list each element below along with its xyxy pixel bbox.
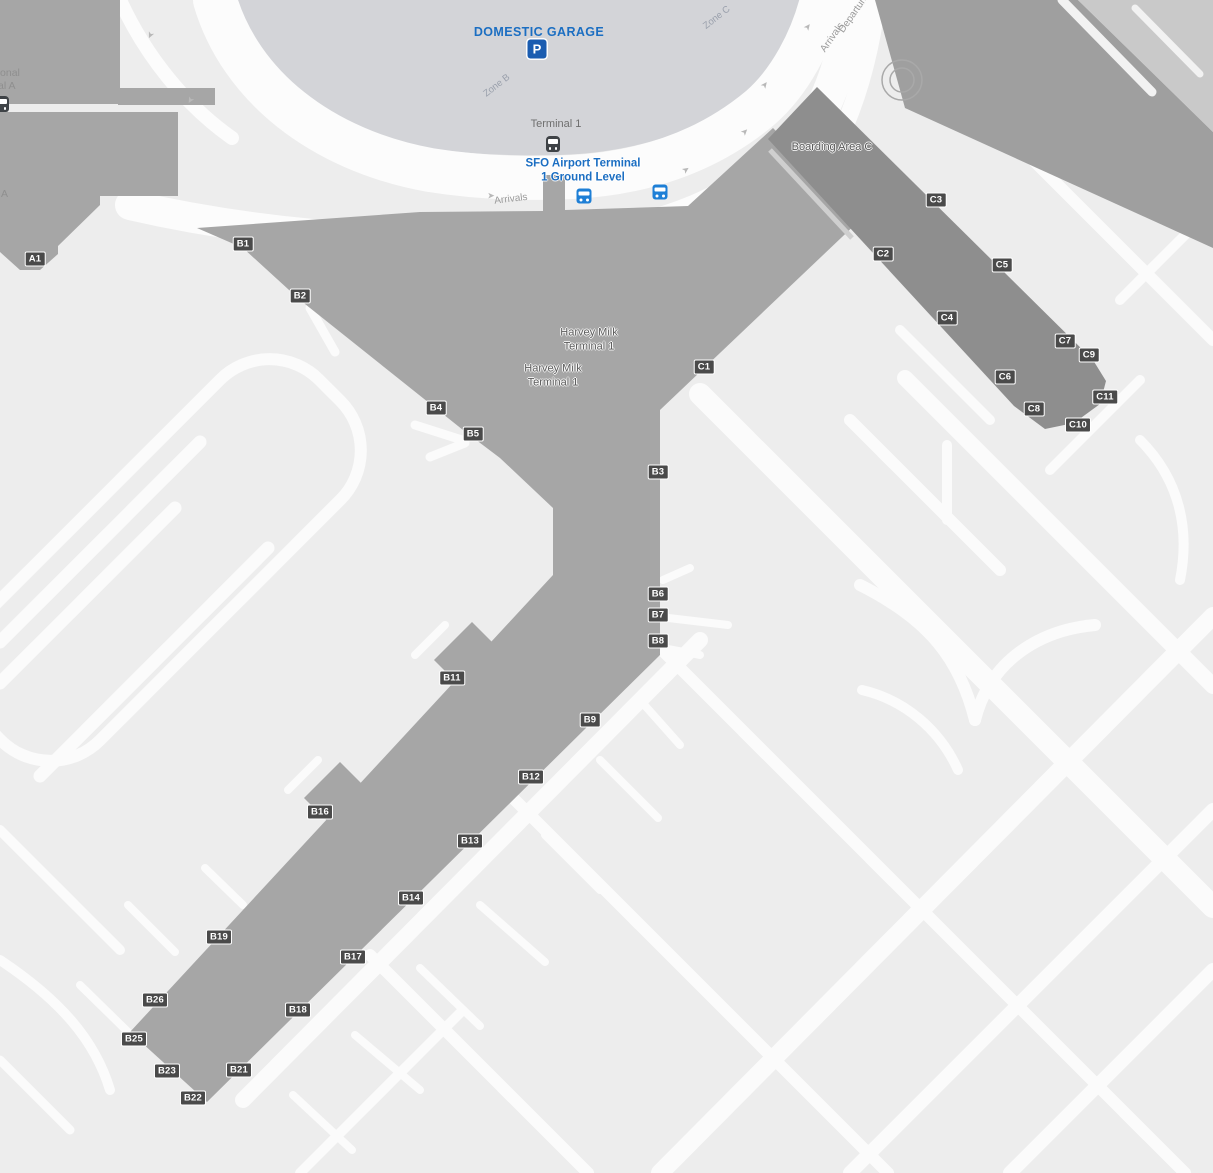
international-terminal-label: International Terminal A: [0, 67, 20, 93]
gate-badge-C6[interactable]: C6: [995, 370, 1016, 385]
terminal-connector-bridge: [118, 88, 215, 105]
harvey-milk-terminal-label: Harvey Milk Terminal 1: [524, 362, 581, 390]
gate-badge-B23[interactable]: B23: [154, 1064, 180, 1079]
gate-badge-C11[interactable]: C11: [1092, 390, 1118, 405]
gate-badge-B6[interactable]: B6: [648, 587, 669, 602]
bus-stop-icon[interactable]: [653, 185, 668, 200]
gate-badge-B12[interactable]: B12: [518, 770, 544, 785]
gate-badge-B26[interactable]: B26: [142, 993, 168, 1008]
gate-badge-B7[interactable]: B7: [648, 608, 669, 623]
gate-badge-B2[interactable]: B2: [290, 289, 311, 304]
terminal-1-station-label: Terminal 1: [531, 118, 582, 132]
gate-badge-B22[interactable]: B22: [180, 1091, 206, 1106]
gate-badge-B9[interactable]: B9: [580, 713, 601, 728]
harvey-milk-line1: Harvey Milk: [560, 326, 617, 340]
gate-badge-B11[interactable]: B11: [439, 671, 465, 686]
gate-badge-B18[interactable]: B18: [285, 1003, 311, 1018]
train-station-icon[interactable]: [0, 96, 9, 112]
boarding-area-a-label: International Boarding Area A: [0, 175, 8, 201]
gate-badge-B1[interactable]: B1: [233, 237, 254, 252]
gate-badge-A1[interactable]: A1: [25, 252, 46, 267]
gate-badge-B25[interactable]: B25: [121, 1032, 147, 1047]
gate-badge-B3[interactable]: B3: [648, 465, 669, 480]
harvey-milk-line2: Terminal 1: [560, 340, 617, 354]
gate-badge-C1[interactable]: C1: [694, 360, 715, 375]
road-arrow-icon: ➤: [487, 192, 495, 201]
intl-terminal-line1: International: [0, 67, 20, 80]
gate-badge-B14[interactable]: B14: [398, 891, 424, 906]
boarding-area-a-line1: International: [0, 175, 8, 188]
gate-badge-B13[interactable]: B13: [457, 834, 483, 849]
gate-badge-B8[interactable]: B8: [648, 634, 669, 649]
gate-badge-C5[interactable]: C5: [992, 258, 1013, 273]
ground-level-label: SFO Airport Terminal 1 Ground Level: [525, 157, 640, 186]
gate-badge-B5[interactable]: B5: [463, 427, 484, 442]
train-station-icon[interactable]: [546, 136, 560, 152]
gate-badge-C9[interactable]: C9: [1079, 348, 1100, 363]
gate-badge-B19[interactable]: B19: [206, 930, 232, 945]
gate-badge-B17[interactable]: B17: [340, 950, 366, 965]
intl-terminal-line2: Terminal A: [0, 80, 20, 93]
boarding-area-c-label: Boarding Area C: [792, 141, 873, 155]
harvey-milk-line1: Harvey Milk: [524, 362, 581, 376]
gate-badge-B21[interactable]: B21: [226, 1063, 252, 1078]
domestic-garage-label: DOMESTIC GARAGE: [474, 25, 604, 41]
gate-badge-C10[interactable]: C10: [1065, 418, 1091, 433]
gate-badge-C7[interactable]: C7: [1055, 334, 1076, 349]
airport-map: DOMESTIC GARAGE P Zone B Zone C Terminal…: [0, 0, 1213, 1173]
harvey-milk-line2: Terminal 1: [524, 376, 581, 390]
ground-level-line1: SFO Airport Terminal: [525, 157, 640, 171]
gate-badge-B16[interactable]: B16: [307, 805, 333, 820]
gate-badge-C2[interactable]: C2: [873, 247, 894, 262]
parking-icon[interactable]: P: [528, 40, 547, 59]
gate-badge-B4[interactable]: B4: [426, 401, 447, 416]
boarding-area-a-line2: Boarding Area A: [0, 188, 8, 201]
ground-level-line2: 1 Ground Level: [525, 171, 640, 185]
harvey-milk-terminal-label: Harvey Milk Terminal 1: [560, 326, 617, 354]
gate-badge-C3[interactable]: C3: [926, 193, 947, 208]
bus-stop-icon[interactable]: [577, 189, 592, 204]
gate-badge-C8[interactable]: C8: [1024, 402, 1045, 417]
gate-badge-C4[interactable]: C4: [937, 311, 958, 326]
